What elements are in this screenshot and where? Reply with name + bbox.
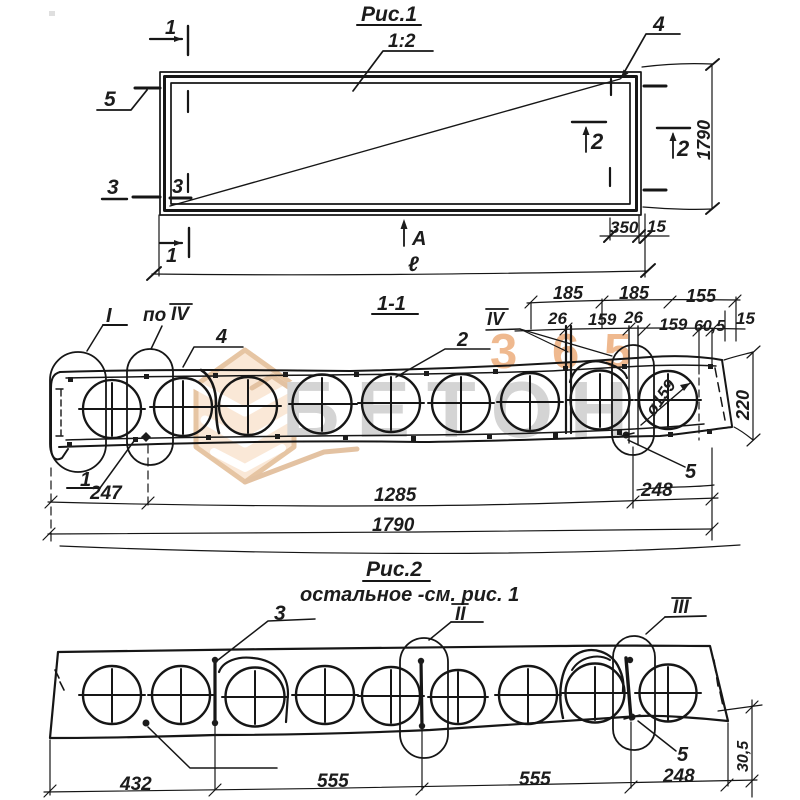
svg-text:4: 4 [215, 326, 227, 348]
svg-text:248: 248 [640, 480, 673, 501]
svg-text:247: 247 [89, 483, 123, 504]
svg-text:1790: 1790 [372, 515, 415, 536]
svg-text:155: 155 [686, 286, 717, 306]
svg-text:2: 2 [456, 329, 468, 351]
svg-text:III: III [673, 597, 690, 618]
svg-text:5: 5 [685, 461, 697, 483]
svg-text:185: 185 [553, 283, 584, 303]
svg-text:30,5: 30,5 [735, 740, 752, 772]
svg-text:60,5: 60,5 [694, 318, 726, 335]
svg-text:3: 3 [274, 602, 286, 625]
svg-text:15: 15 [647, 217, 666, 236]
svg-text:220: 220 [733, 390, 753, 421]
svg-text:26: 26 [547, 309, 567, 328]
svg-text:1285: 1285 [374, 485, 417, 506]
svg-text:2: 2 [590, 129, 604, 154]
svg-text:I: I [106, 305, 112, 327]
svg-text:1:2: 1:2 [388, 31, 416, 52]
svg-text:159: 159 [588, 310, 617, 329]
svg-text:3: 3 [107, 176, 119, 199]
svg-text:5: 5 [104, 88, 116, 111]
svg-text:по: по [143, 305, 166, 326]
svg-text:2: 2 [676, 136, 690, 161]
svg-text:159: 159 [659, 315, 688, 334]
svg-text:4: 4 [652, 13, 665, 36]
svg-text:555: 555 [519, 769, 551, 790]
svg-text:350: 350 [610, 218, 639, 237]
svg-text:IV: IV [171, 304, 190, 325]
svg-text:185: 185 [619, 283, 650, 303]
svg-text:26: 26 [623, 308, 643, 327]
svg-text:1790: 1790 [694, 120, 714, 160]
svg-text:248: 248 [662, 766, 695, 787]
svg-text:15: 15 [736, 309, 755, 328]
svg-text:432: 432 [119, 774, 152, 795]
svg-text:5: 5 [677, 744, 689, 766]
svg-text:Рис.2: Рис.2 [366, 558, 422, 581]
svg-text:остальное -см. рис. 1: остальное -см. рис. 1 [300, 584, 519, 606]
svg-text:1: 1 [166, 245, 177, 267]
svg-text:ℓ: ℓ [408, 253, 419, 276]
svg-text:IV: IV [487, 309, 506, 329]
svg-text:А: А [411, 228, 426, 250]
svg-text:3: 3 [172, 176, 183, 198]
svg-text:1-1: 1-1 [377, 293, 406, 315]
svg-text:1: 1 [165, 17, 176, 39]
svg-text:Рис.1: Рис.1 [361, 3, 417, 26]
svg-text:555: 555 [317, 771, 349, 792]
